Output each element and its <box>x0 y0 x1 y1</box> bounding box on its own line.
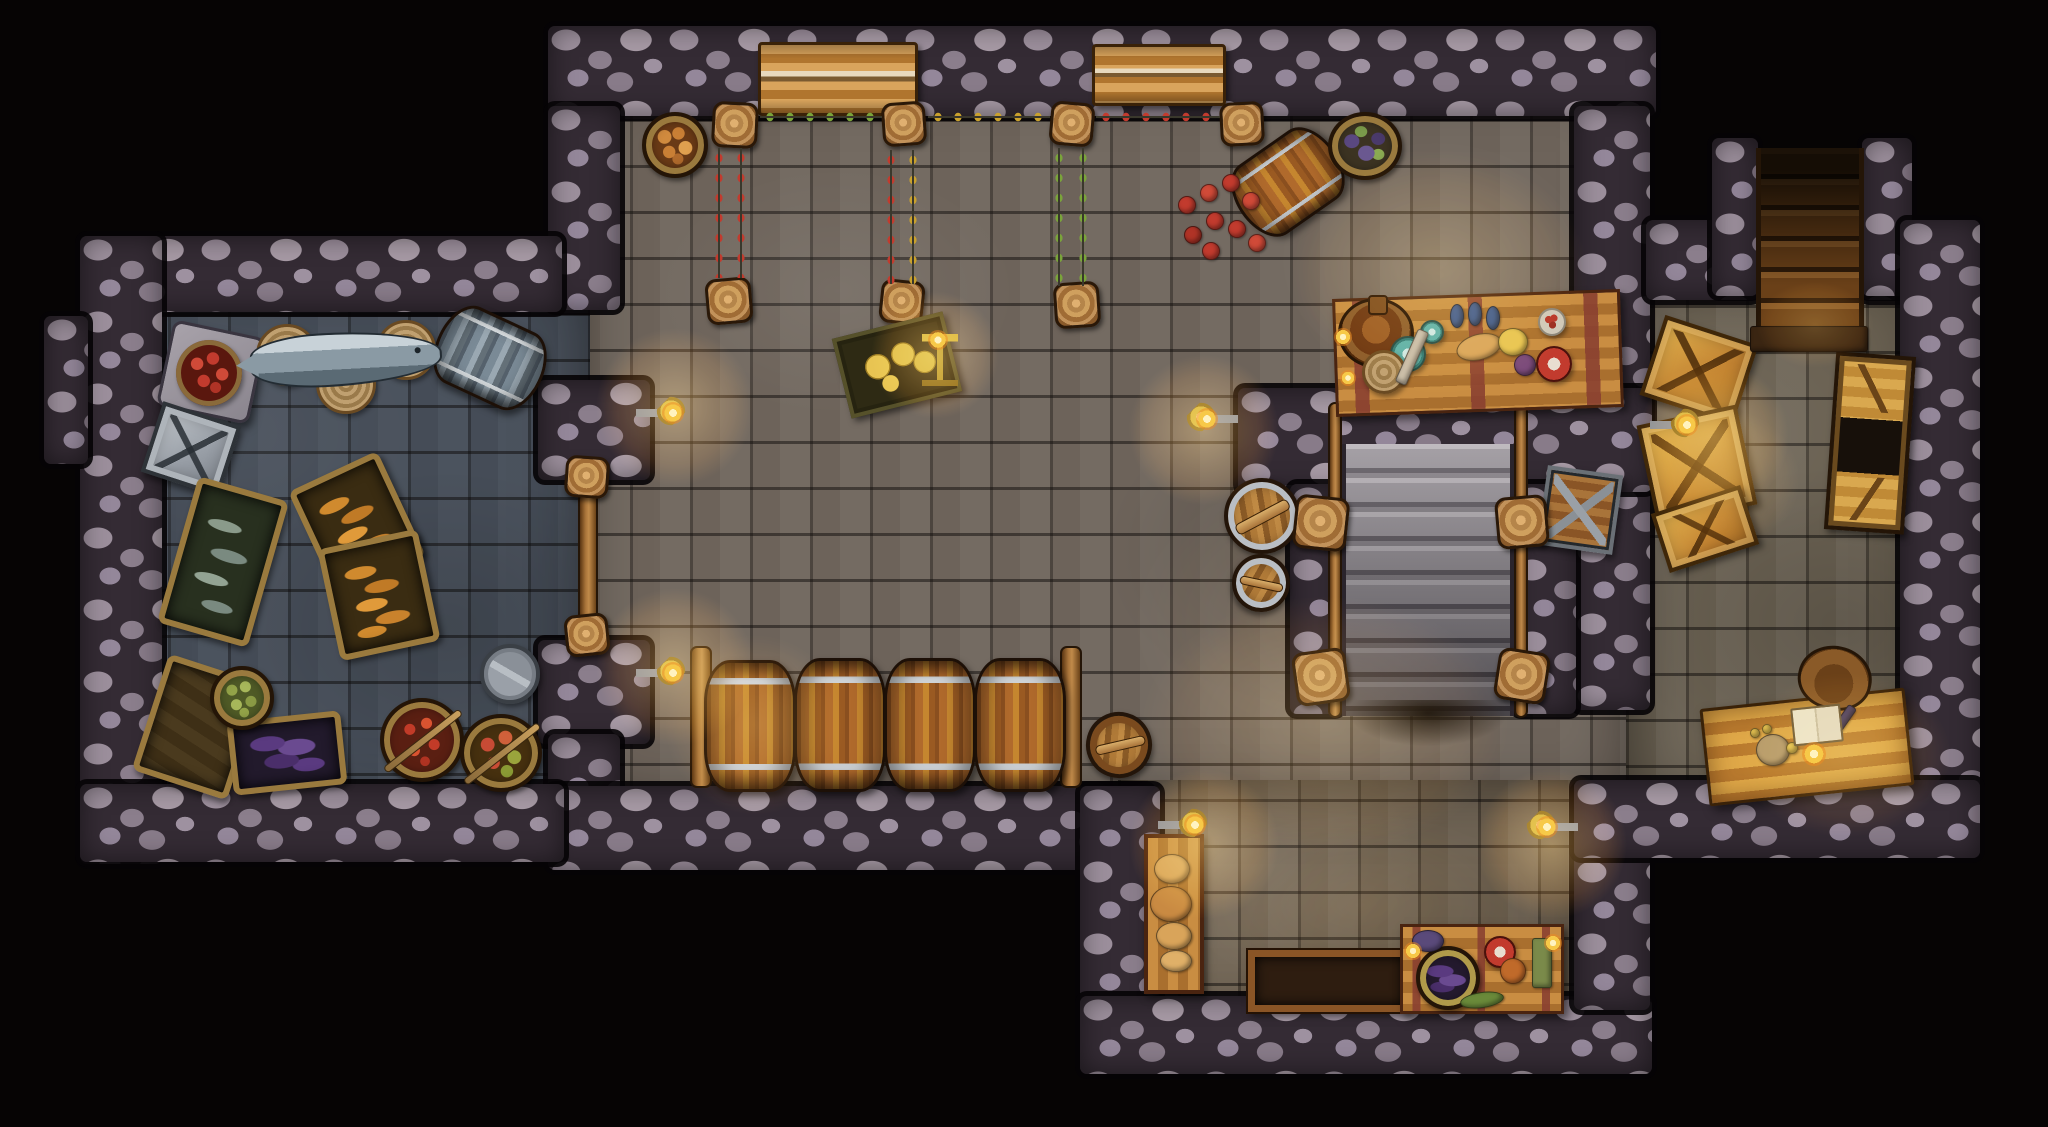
spilled-tomato <box>1248 234 1266 252</box>
spilled-tomato <box>1222 174 1240 192</box>
torch-flame <box>1676 414 1698 436</box>
banded-crate <box>1537 465 1623 555</box>
rail-stump <box>1494 494 1550 550</box>
torch-flame <box>662 662 684 684</box>
hanging-post <box>1052 280 1101 329</box>
wine-barrel <box>704 660 796 792</box>
grey-lid <box>480 644 540 704</box>
spilled-tomato <box>1206 212 1224 230</box>
spilled-tomato <box>1202 242 1220 260</box>
pepper-string <box>928 108 1050 128</box>
wall-right-room-right <box>1900 220 1980 804</box>
wall-stair-alcove-left <box>1712 138 1758 296</box>
torch-flame <box>1536 816 1558 838</box>
hall-gate-rail <box>578 492 598 622</box>
desk-candle-flame <box>1802 742 1826 766</box>
herb-string <box>760 108 882 128</box>
tomato-string-vertical <box>736 148 748 278</box>
bread-loaf <box>1154 854 1190 884</box>
wall-bench <box>1092 44 1226 106</box>
bread-loaf <box>1150 886 1192 922</box>
tomato-string-vertical <box>714 148 726 278</box>
herb-vine-vertical <box>1078 148 1092 286</box>
spilled-tomato <box>1200 184 1218 202</box>
torch-flame <box>1196 408 1218 430</box>
torch-flame <box>1184 814 1206 836</box>
hanging-post <box>711 101 759 149</box>
hanging-post <box>1219 101 1265 147</box>
gate-stump <box>563 612 611 658</box>
table-candle-flame <box>1404 942 1422 960</box>
wall-left-room-bottom <box>80 784 564 862</box>
bread-loaf <box>1156 922 1192 950</box>
pepper-string-vertical <box>908 150 920 284</box>
chili-basket <box>380 698 464 782</box>
open-crate <box>1824 351 1916 534</box>
central-stone-stairs <box>1342 444 1514 716</box>
candelabra-flame <box>928 330 948 350</box>
hanging-post <box>1048 100 1096 148</box>
rail-stump <box>1492 646 1551 705</box>
wall-hall-left-pillar-b <box>538 640 650 744</box>
torch-flame <box>662 402 684 424</box>
onion-basket <box>642 112 708 178</box>
spilled-tomato <box>1184 226 1202 244</box>
hanging-post <box>881 101 928 148</box>
storage-barrel-top <box>1224 478 1300 554</box>
cheese-wedge <box>1498 328 1528 356</box>
wall-hall-bottom <box>548 786 1152 870</box>
apple-basket <box>460 714 542 792</box>
bread-loaf <box>1160 950 1192 972</box>
wine-barrel <box>794 658 886 792</box>
gold-coin <box>1750 728 1760 738</box>
bottle <box>1450 304 1464 328</box>
hanging-post <box>704 276 754 326</box>
shelf-candle-flame <box>1334 328 1352 346</box>
gold-coin <box>1762 724 1772 734</box>
rail-stump <box>1291 493 1350 552</box>
tomato-plate <box>176 340 242 406</box>
rail-stump <box>1291 647 1352 708</box>
alcove-wood-stairs-up <box>1756 148 1864 332</box>
herb-vine-vertical <box>1054 148 1068 286</box>
wall-left-room-left-bump <box>44 316 88 464</box>
cellar-battle-map <box>0 0 2048 1127</box>
table-candle-flame <box>1544 934 1562 952</box>
stairs-exit-shadow <box>1326 700 1530 772</box>
alcove-stair-landing <box>1750 326 1868 352</box>
grape-basket <box>1328 112 1402 180</box>
tomato-string <box>1096 108 1220 128</box>
open-ledger <box>1790 703 1844 746</box>
bottle <box>1486 306 1500 330</box>
gate-stump <box>564 455 611 500</box>
olive-bowl <box>210 666 274 730</box>
spilled-tomato <box>1228 220 1246 238</box>
spilled-tomato <box>1178 196 1196 214</box>
shelf-candle-flame <box>1340 370 1356 386</box>
spilled-tomato <box>1242 192 1260 210</box>
pitcher <box>1500 958 1526 984</box>
onion <box>1514 354 1536 376</box>
berry-plate <box>1538 308 1566 336</box>
coin-pouch <box>1756 734 1790 766</box>
tomato-string-vertical <box>886 150 898 284</box>
bottle <box>1468 302 1482 326</box>
wooden-trough <box>1248 950 1410 1012</box>
wine-barrel <box>884 658 976 792</box>
red-bowl <box>1536 346 1572 382</box>
wine-barrel <box>974 658 1066 792</box>
